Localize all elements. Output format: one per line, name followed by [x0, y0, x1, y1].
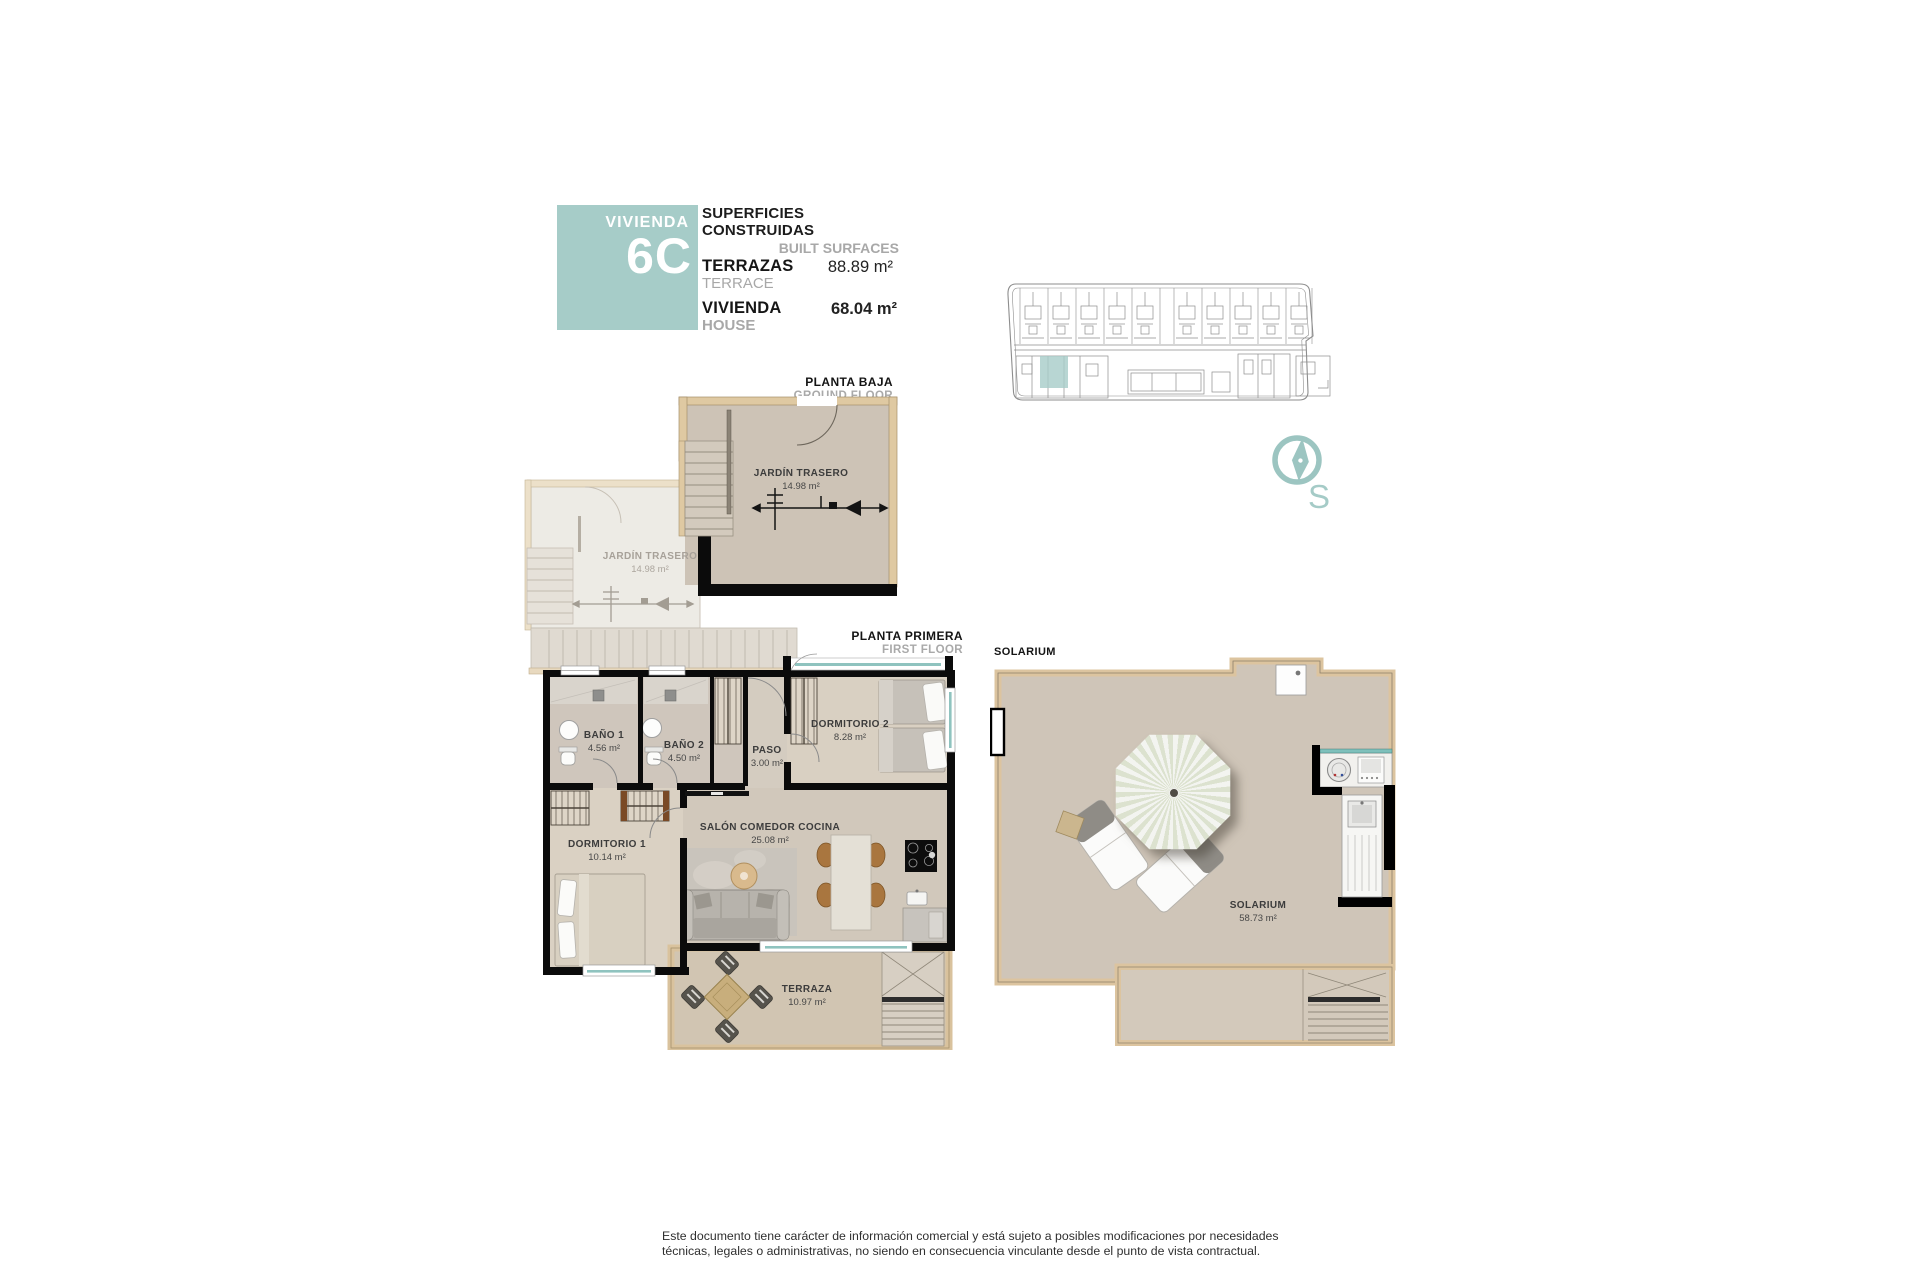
basin-icon: [560, 721, 579, 740]
surface-sublabel: HOUSE: [702, 317, 899, 334]
surface-row-house: VIVIENDA HOUSE 68.04 m²: [702, 299, 899, 334]
balcony-tab: [991, 709, 1004, 755]
site-plan-top-row-units: [1020, 288, 1312, 344]
disclaimer-line1: Este documento tiene carácter de informa…: [662, 1229, 1322, 1244]
wall: [698, 584, 897, 596]
room-label-paso: PASO 3.00 m²: [751, 745, 783, 769]
sofa-icon: [681, 890, 789, 940]
stairs-icon: [527, 548, 573, 624]
room-label-solarium: SOLARIUM 58.73 m²: [1230, 900, 1287, 924]
room-label-dormitorio2: DORMITORIO 2 8.28 m²: [811, 719, 889, 743]
room-label-dormitorio1: DORMITORIO 1 10.14 m²: [568, 839, 646, 863]
parasol-icon: [1111, 730, 1235, 854]
room-label-salon: SALÓN COMEDOR COCINA 25.08 m²: [700, 822, 840, 846]
shower-tray-icon: [1276, 665, 1306, 695]
room-label-jardin-trasero-adjacent: JARDÍN TRASERO 14.98 m²: [603, 551, 698, 575]
surface-value: 68.04 m²: [831, 300, 897, 319]
sink-icon: [907, 892, 927, 905]
floor-title-es: PLANTA BAJA: [794, 375, 893, 389]
site-plan: [1000, 280, 1345, 414]
hob-icon: [905, 840, 937, 872]
room-label-bano2: BAÑO 2 4.50 m²: [664, 740, 704, 764]
basin-icon: [643, 719, 662, 738]
unit-garden: [679, 396, 897, 596]
disclaimer-line2: técnicas, legales o administrativas, no …: [662, 1244, 1322, 1259]
stairs-icon: [882, 952, 944, 1046]
room-label-jardin-trasero: JARDÍN TRASERO 14.98 m²: [754, 468, 849, 492]
surface-sublabel: TERRACE: [702, 275, 899, 292]
toilet-icon: [645, 747, 663, 765]
unit-badge: VIVIENDA 6C: [557, 205, 698, 330]
surface-row-terrace: TERRAZAS TERRACE 88.89 m²: [702, 257, 899, 292]
surfaces-subtitle: BUILT SURFACES: [702, 240, 899, 256]
tv-icon: [685, 791, 749, 796]
toilet-icon: [559, 747, 577, 765]
surface-value: 88.89 m²: [828, 258, 893, 277]
compass-south-label: S: [1308, 478, 1330, 516]
solarium-lower-terrace: [1118, 967, 1392, 1043]
site-plan-highlight-unit: [1040, 356, 1068, 388]
coffee-table-icon: [731, 863, 757, 889]
bed-icon: [879, 680, 948, 724]
built-surfaces-panel: SUPERFICIES CONSTRUIDAS BUILT SURFACES T…: [702, 205, 899, 256]
bed-icon: [879, 728, 948, 772]
living-furniture: [681, 835, 885, 940]
disclaimer-text: Este documento tiene carácter de informa…: [662, 1229, 1322, 1259]
room-label-terraza: TERRAZA 10.97 m²: [782, 984, 833, 1008]
unit-badge-number: 6C: [626, 227, 692, 285]
floor-title-es: PLANTA PRIMERA: [851, 629, 963, 643]
floor-plan-sheet: VIVIENDA 6C SUPERFICIES CONSTRUIDAS BUIL…: [0, 0, 1920, 1280]
surfaces-title: SUPERFICIES CONSTRUIDAS: [702, 205, 899, 239]
room-label-bano1: BAÑO 1 4.56 m²: [584, 730, 624, 754]
bed-icon-double: [555, 874, 645, 966]
bbq-icon: [1328, 759, 1351, 782]
